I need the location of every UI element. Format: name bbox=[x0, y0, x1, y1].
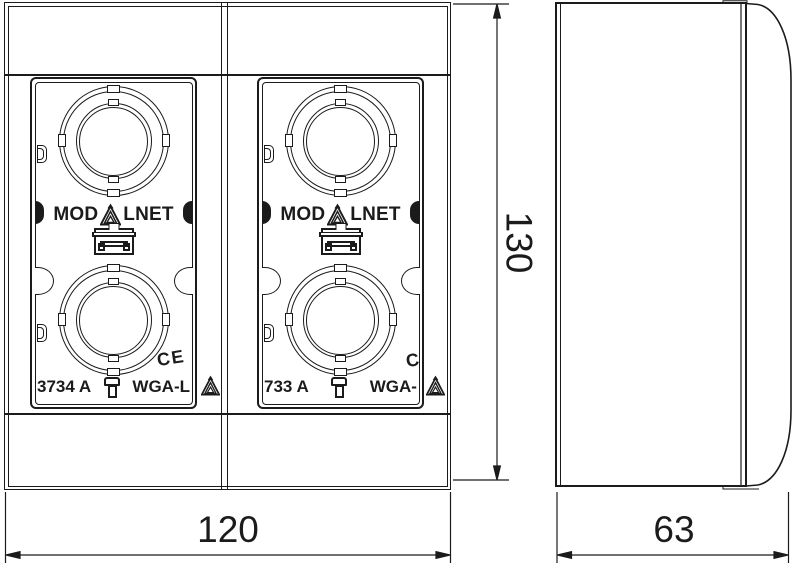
latch-clip-nub bbox=[335, 223, 346, 230]
latch-clip bbox=[321, 228, 361, 255]
dimension-depth-label: 63 bbox=[634, 511, 714, 548]
clip-icon bbox=[104, 377, 120, 398]
cover-curve bbox=[746, 4, 791, 487]
brand-text-lnet: LNET bbox=[350, 204, 400, 226]
arrow-down bbox=[494, 466, 501, 480]
dimension-width-label: 120 bbox=[182, 511, 274, 548]
arrow-left bbox=[6, 552, 20, 559]
part-number: 3734 A bbox=[37, 377, 91, 397]
center-joint-line bbox=[227, 2, 228, 490]
technical-drawing-canvas: MOD LNET CE 3734 A WGA-L bbox=[0, 0, 794, 566]
model-code: WGA- bbox=[370, 377, 417, 397]
module-right: MOD LNET C 733 A WGA- bbox=[257, 77, 424, 409]
latch-tab-upper bbox=[264, 145, 274, 163]
brand-text-mod: MOD bbox=[280, 204, 325, 226]
module-left: MOD LNET CE 3734 A WGA-L bbox=[30, 77, 197, 409]
triangle-logo-icon bbox=[426, 374, 445, 397]
latch-tab-lower bbox=[264, 324, 274, 342]
socket-opening-top bbox=[286, 86, 396, 196]
triangle-logo-icon bbox=[201, 374, 220, 397]
ce-mark: C bbox=[404, 349, 422, 372]
side-view bbox=[553, 0, 794, 494]
brand-text-mod: MOD bbox=[53, 204, 98, 226]
module-label-row: 3734 A WGA-L bbox=[36, 375, 191, 399]
latch-tab-upper bbox=[37, 145, 47, 163]
model-code: WGA-L bbox=[132, 377, 190, 397]
latch-tab-lower bbox=[37, 324, 47, 342]
ce-mark: CE bbox=[156, 346, 187, 371]
latch-clip-nub bbox=[108, 223, 119, 230]
socket-opening-bottom bbox=[59, 265, 169, 375]
latch-clip bbox=[94, 228, 134, 255]
module-label-row: 733 A WGA- bbox=[263, 375, 418, 399]
arrow-left bbox=[558, 552, 572, 559]
arrow-up bbox=[494, 4, 501, 18]
arrow-right bbox=[774, 552, 788, 559]
dimension-height-label: 130 bbox=[501, 202, 538, 284]
clip-icon bbox=[331, 377, 347, 398]
part-number: 733 A bbox=[264, 377, 309, 397]
brand-text-lnet: LNET bbox=[123, 204, 173, 226]
socket-opening-top bbox=[59, 86, 169, 196]
center-joint-line bbox=[221, 2, 222, 490]
socket-opening-bottom bbox=[286, 265, 396, 375]
arrow-right bbox=[436, 552, 450, 559]
